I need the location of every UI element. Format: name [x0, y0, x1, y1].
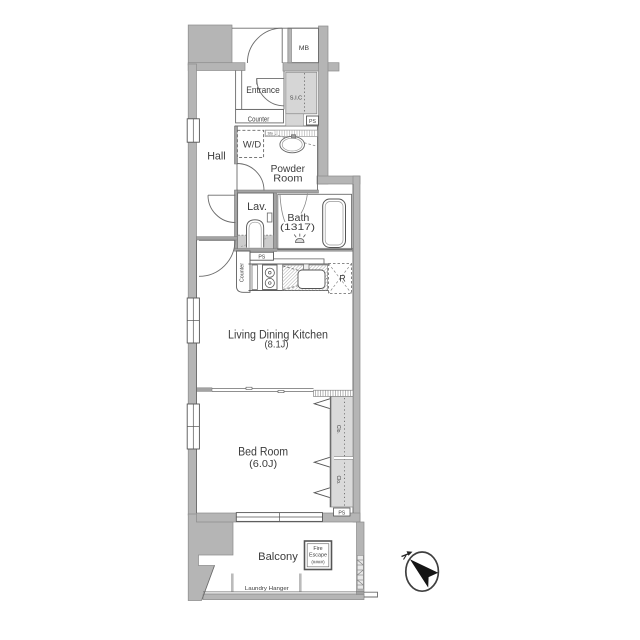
- svg-text:Counter: Counter: [239, 263, 245, 282]
- svg-text:(1317): (1317): [280, 222, 315, 232]
- svg-text:Escape: Escape: [309, 553, 327, 559]
- svg-text:W/D: W/D: [243, 138, 261, 149]
- svg-text:PS: PS: [258, 255, 265, 261]
- svg-text:Clo.: Clo.: [335, 476, 341, 485]
- svg-text:S.I.C: S.I.C: [290, 96, 302, 102]
- svg-text:Fire: Fire: [313, 546, 322, 552]
- svg-text:Laundry Hanger: Laundry Hanger: [245, 586, 289, 592]
- svg-text:Hall: Hall: [207, 151, 225, 163]
- svg-text:(8.1J): (8.1J): [265, 340, 289, 351]
- svg-text:Entrance: Entrance: [246, 84, 280, 95]
- svg-text:Balcony: Balcony: [258, 551, 298, 563]
- svg-text:Clo.: Clo.: [335, 425, 341, 434]
- svg-text:PS: PS: [338, 511, 345, 517]
- svg-text:(6.0J): (6.0J): [249, 459, 277, 470]
- svg-text:MB: MB: [299, 45, 310, 52]
- svg-text:Bed Room: Bed Room: [238, 444, 288, 458]
- svg-text:PS: PS: [309, 119, 316, 125]
- svg-text:Sto: Sto: [267, 131, 272, 135]
- svg-text:Counter: Counter: [248, 116, 270, 123]
- svg-text:R: R: [339, 274, 345, 284]
- svg-text:Lav.: Lav.: [247, 201, 267, 213]
- svg-text:(####): (####): [311, 560, 325, 565]
- svg-text:Room: Room: [273, 174, 302, 185]
